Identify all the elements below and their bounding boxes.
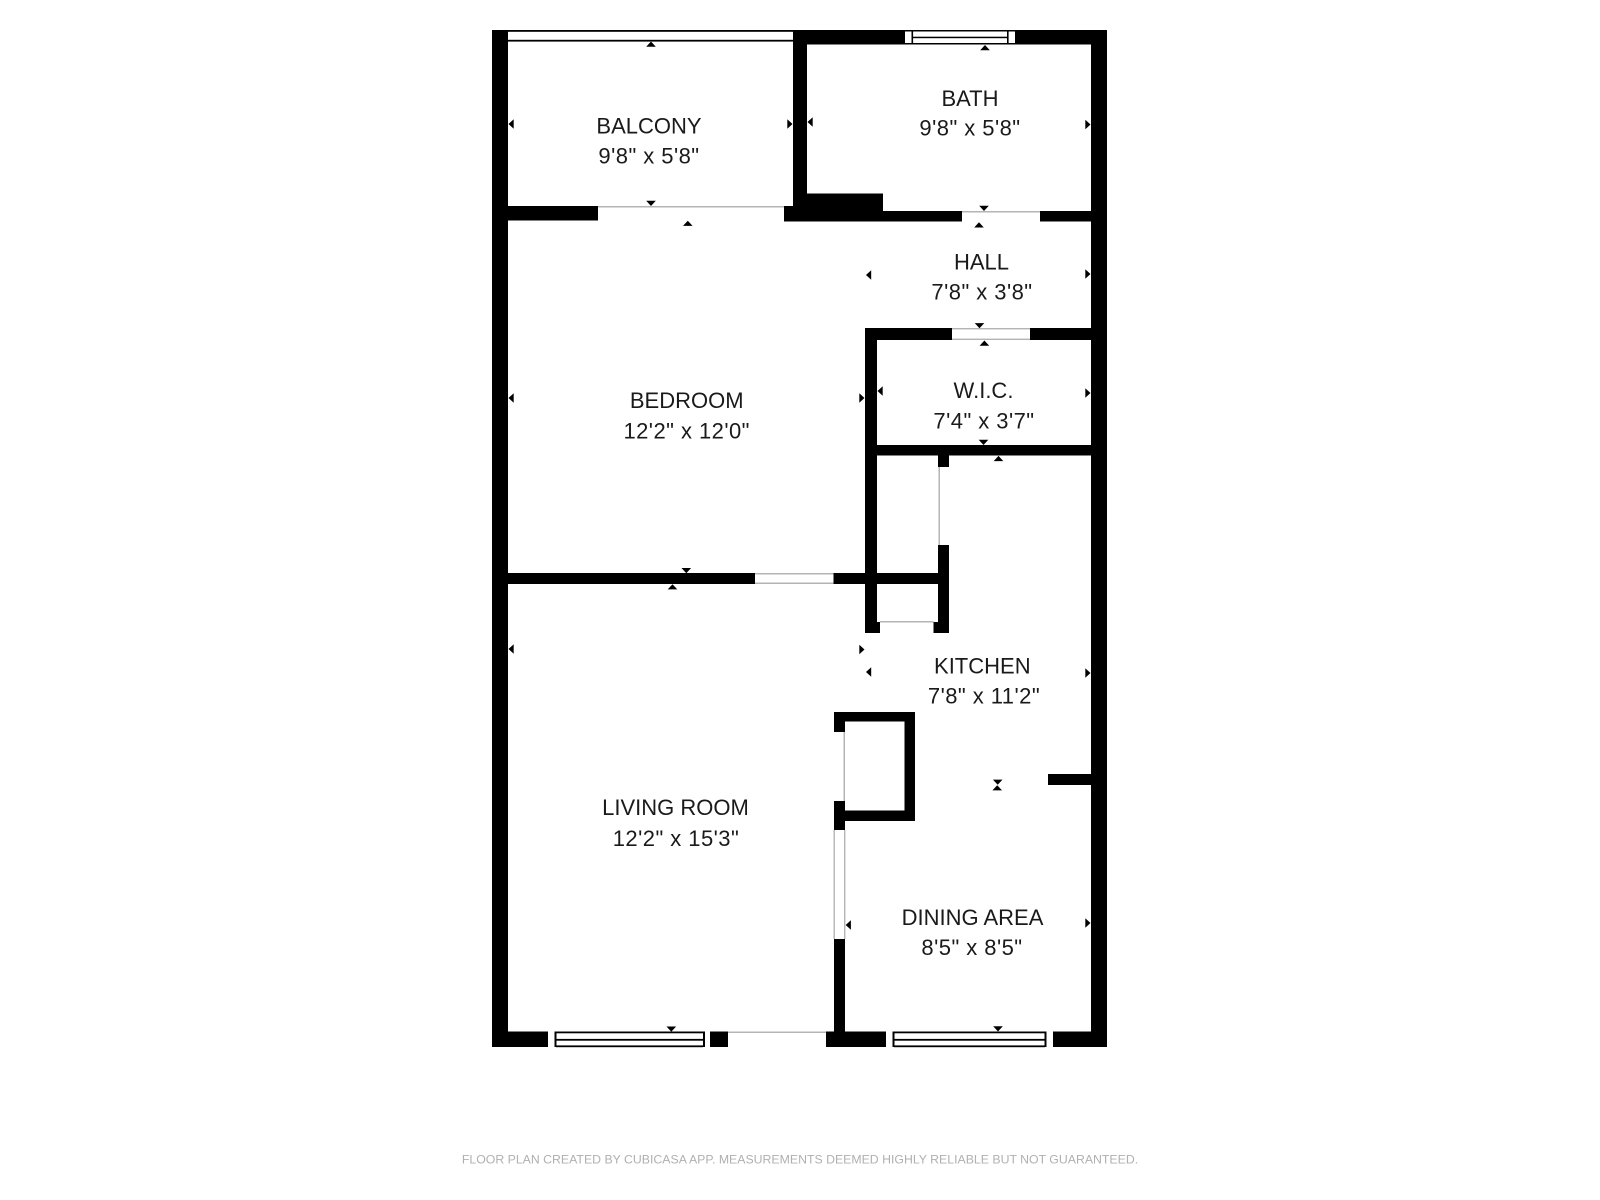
svg-text:8'5" x 8'5": 8'5" x 8'5": [921, 935, 1022, 960]
svg-text:9'8" x 5'8": 9'8" x 5'8": [598, 144, 699, 169]
svg-text:BALCONY: BALCONY: [596, 114, 701, 139]
svg-text:W.I.C.: W.I.C.: [954, 378, 1014, 403]
svg-text:KITCHEN: KITCHEN: [934, 654, 1031, 679]
svg-text:LIVING ROOM: LIVING ROOM: [602, 795, 749, 820]
svg-text:HALL: HALL: [954, 250, 1009, 275]
svg-text:BEDROOM: BEDROOM: [630, 388, 744, 413]
svg-text:9'8" x 5'8": 9'8" x 5'8": [919, 116, 1020, 141]
svg-text:FLOOR PLAN CREATED BY CUBICASA: FLOOR PLAN CREATED BY CUBICASA APP. MEAS…: [462, 1153, 1138, 1167]
svg-text:12'2" x 15'3": 12'2" x 15'3": [613, 826, 740, 851]
svg-text:7'4" x 3'7": 7'4" x 3'7": [933, 409, 1034, 434]
svg-text:BATH: BATH: [941, 86, 998, 111]
svg-text:7'8" x 3'8": 7'8" x 3'8": [931, 280, 1032, 305]
svg-text:12'2" x 12'0": 12'2" x 12'0": [623, 419, 750, 444]
svg-text:7'8" x 11'2": 7'8" x 11'2": [928, 684, 1040, 709]
svg-text:DINING AREA: DINING AREA: [902, 905, 1044, 930]
